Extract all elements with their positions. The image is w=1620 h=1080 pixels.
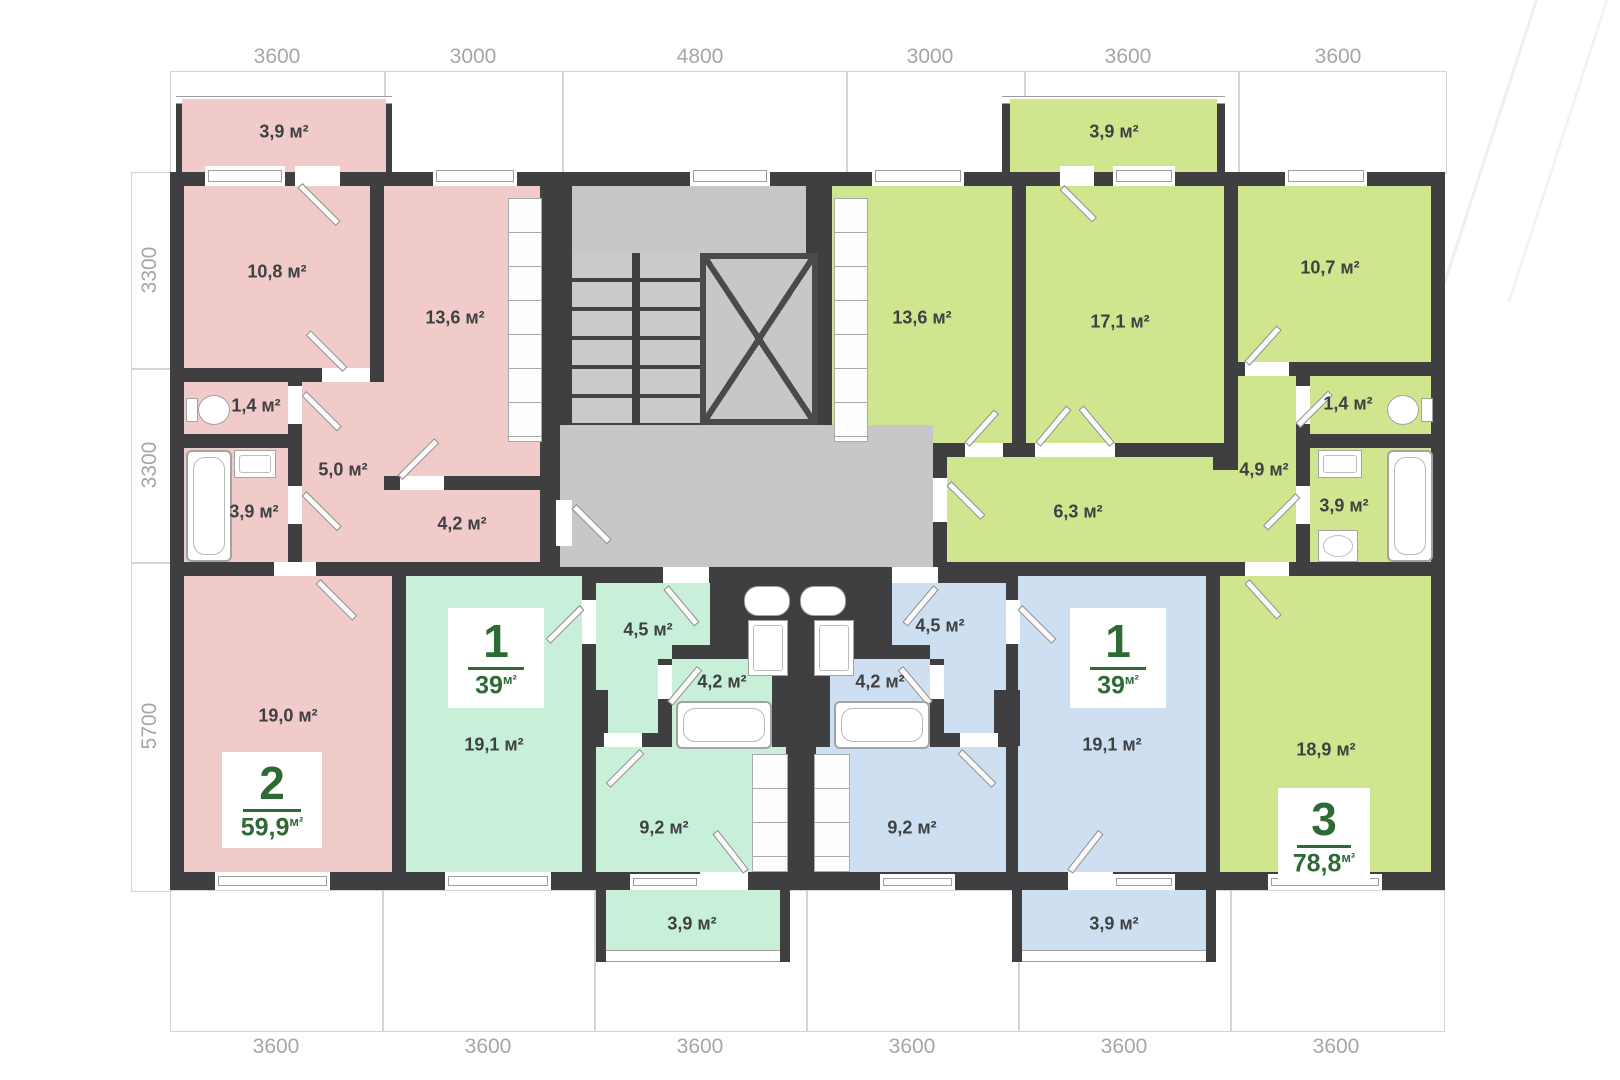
stairs-icon (640, 253, 700, 425)
room-label: 3,9 м² (1089, 914, 1138, 935)
stairs-icon (572, 253, 632, 425)
dim-cell-top (562, 71, 848, 174)
badge-divider (1090, 667, 1146, 670)
kitchen-cabinets (752, 754, 788, 872)
balcony-wall (1012, 890, 1022, 962)
door-opening (604, 733, 642, 747)
door-opening (274, 562, 316, 576)
dim-bottom-1: 3600 (253, 1035, 300, 1059)
dim-top-1: 3600 (254, 45, 301, 69)
bathtub-icon (834, 701, 930, 749)
apartment-badge-3[interactable]: 3 78,8м² (1278, 788, 1370, 885)
window (445, 872, 551, 890)
elevator-icon (700, 253, 818, 425)
apartment-badge-1-left[interactable]: 1 39м² (448, 608, 544, 708)
door-opening (892, 567, 938, 583)
room-label: 18,9 м² (1296, 740, 1355, 761)
room-label: 4,2 м² (697, 672, 746, 693)
window (1113, 874, 1175, 890)
window (215, 872, 330, 890)
door-opening (930, 665, 944, 699)
door-opening (700, 872, 748, 890)
room-label: 3,9 м² (1319, 496, 1368, 517)
room-label: 4,2 м² (437, 514, 486, 535)
door-opening (1006, 600, 1020, 644)
stair-landing (572, 186, 806, 253)
floor-plan: 3600 3000 4800 3000 3600 3600 3300 3300 … (0, 0, 1620, 1080)
room-label: 10,8 м² (247, 262, 306, 283)
apartment-area: 39м² (475, 673, 517, 698)
window (1113, 166, 1175, 186)
balcony-wall (1002, 96, 1010, 172)
dim-left-2: 3300 (138, 442, 162, 489)
dim-cell-bottom (806, 890, 1020, 1032)
dim-bottom-5: 3600 (1101, 1035, 1148, 1059)
apartment-number: 2 (259, 760, 285, 806)
balcony-railing (1022, 950, 1206, 962)
window (205, 166, 285, 186)
room-label: 4,9 м² (1239, 460, 1288, 481)
door-opening (288, 486, 302, 524)
door-opening (582, 600, 596, 644)
door-opening (400, 476, 444, 490)
room-label: 19,1 м² (464, 735, 523, 756)
dim-top-6: 3600 (1315, 45, 1362, 69)
balcony-wall (1206, 890, 1216, 962)
balcony-wall (780, 890, 790, 962)
bathtub-icon (676, 701, 772, 749)
room-label: 1,4 м² (1323, 394, 1372, 415)
basin-icon (800, 586, 846, 616)
kitchen-cabinets (834, 198, 868, 442)
area-unit: м² (289, 814, 303, 829)
room-label: 13,6 м² (425, 308, 484, 329)
dim-top-5: 3600 (1105, 45, 1152, 69)
area-unit: м² (1341, 850, 1355, 865)
window (872, 166, 964, 186)
room-label: 4,5 м² (623, 620, 672, 641)
badge-divider (243, 809, 301, 812)
stair-mid-wall (632, 253, 640, 425)
door-opening (1245, 562, 1289, 576)
badge-divider (468, 667, 524, 670)
dim-bottom-2: 3600 (465, 1035, 512, 1059)
vanity-icon (814, 620, 854, 676)
door-opening (1068, 872, 1113, 890)
room-label: 19,1 м² (1082, 735, 1141, 756)
room-label: 3,9 м² (259, 122, 308, 143)
room-label: 5,0 м² (318, 460, 367, 481)
door-opening (1060, 166, 1094, 186)
apartment-area: 59,9м² (241, 815, 304, 840)
dim-bottom-3: 3600 (677, 1035, 724, 1059)
common-corridor (560, 425, 933, 567)
basin-icon (744, 586, 790, 616)
sink-icon (1318, 450, 1362, 478)
dim-cell-bottom (170, 890, 384, 1032)
room-label: 13,6 м² (892, 308, 951, 329)
toilet-icon (186, 392, 232, 426)
dim-left-1: 3300 (138, 247, 162, 294)
apartment-badge-2[interactable]: 2 59,9м² (222, 752, 322, 848)
apartment-badge-1-right[interactable]: 1 39м² (1070, 608, 1166, 708)
vanity-icon (748, 620, 788, 676)
dim-bottom-4: 3600 (889, 1035, 936, 1059)
dim-bottom-6: 3600 (1313, 1035, 1360, 1059)
dim-cell-top (1238, 71, 1447, 174)
balcony-wall (1217, 96, 1225, 172)
balcony-railing (606, 950, 780, 962)
sink-icon (234, 450, 276, 478)
room-label: 19,0 м² (258, 706, 317, 727)
dim-top-4: 3000 (907, 45, 954, 69)
apartment-number: 3 (1311, 796, 1337, 842)
door-opening (933, 478, 947, 522)
apartment-number: 1 (483, 618, 509, 664)
room-label: 10,7 м² (1300, 258, 1359, 279)
dim-top-2: 3000 (450, 45, 497, 69)
window (880, 874, 955, 890)
door-opening (556, 500, 572, 546)
dim-cell-bottom (382, 890, 596, 1032)
bathtub-icon (186, 450, 232, 562)
room-label: 1,4 м² (231, 396, 280, 417)
room-label: 3,9 м² (667, 914, 716, 935)
washing-machine-icon (1318, 530, 1358, 562)
window (690, 166, 770, 186)
room-label: 3,9 м² (229, 502, 278, 523)
room-green-hall-conn (1213, 470, 1238, 562)
door-opening (288, 386, 302, 424)
room-label: 4,5 м² (915, 616, 964, 637)
dim-cell-top (846, 71, 1026, 174)
room-label: 9,2 м² (887, 818, 936, 839)
door-opening (1245, 362, 1289, 376)
area-unit: м² (1125, 672, 1139, 687)
room-label: 17,1 м² (1090, 312, 1149, 333)
dim-left-3: 5700 (138, 703, 162, 750)
badge-divider (1297, 845, 1350, 848)
room-label: 9,2 м² (639, 818, 688, 839)
bathtub-icon (1387, 450, 1433, 562)
kitchen-cabinets (814, 754, 850, 872)
door-opening (663, 567, 709, 583)
door-opening (960, 733, 998, 747)
room-label: 6,3 м² (1053, 502, 1102, 523)
toilet-icon (1385, 392, 1431, 426)
watermark-line (1508, 0, 1616, 302)
window (630, 874, 700, 890)
dim-top-3: 4800 (677, 45, 724, 69)
door-opening (1035, 443, 1115, 457)
balcony-wall (596, 890, 606, 962)
kitchen-cabinets (508, 198, 542, 442)
window (433, 166, 517, 186)
room-label: 4,2 м² (855, 672, 904, 693)
area-unit: м² (503, 672, 517, 687)
room-label: 3,9 м² (1089, 122, 1138, 143)
door-opening (658, 665, 672, 699)
window (1285, 166, 1367, 186)
door-opening (1296, 486, 1310, 524)
dim-cell-bottom (1230, 890, 1445, 1032)
apartment-area: 78,8м² (1293, 851, 1356, 876)
door-opening (322, 368, 370, 382)
dim-cell-top (384, 71, 564, 174)
apartment-number: 1 (1105, 618, 1131, 664)
apartment-area: 39м² (1097, 673, 1139, 698)
